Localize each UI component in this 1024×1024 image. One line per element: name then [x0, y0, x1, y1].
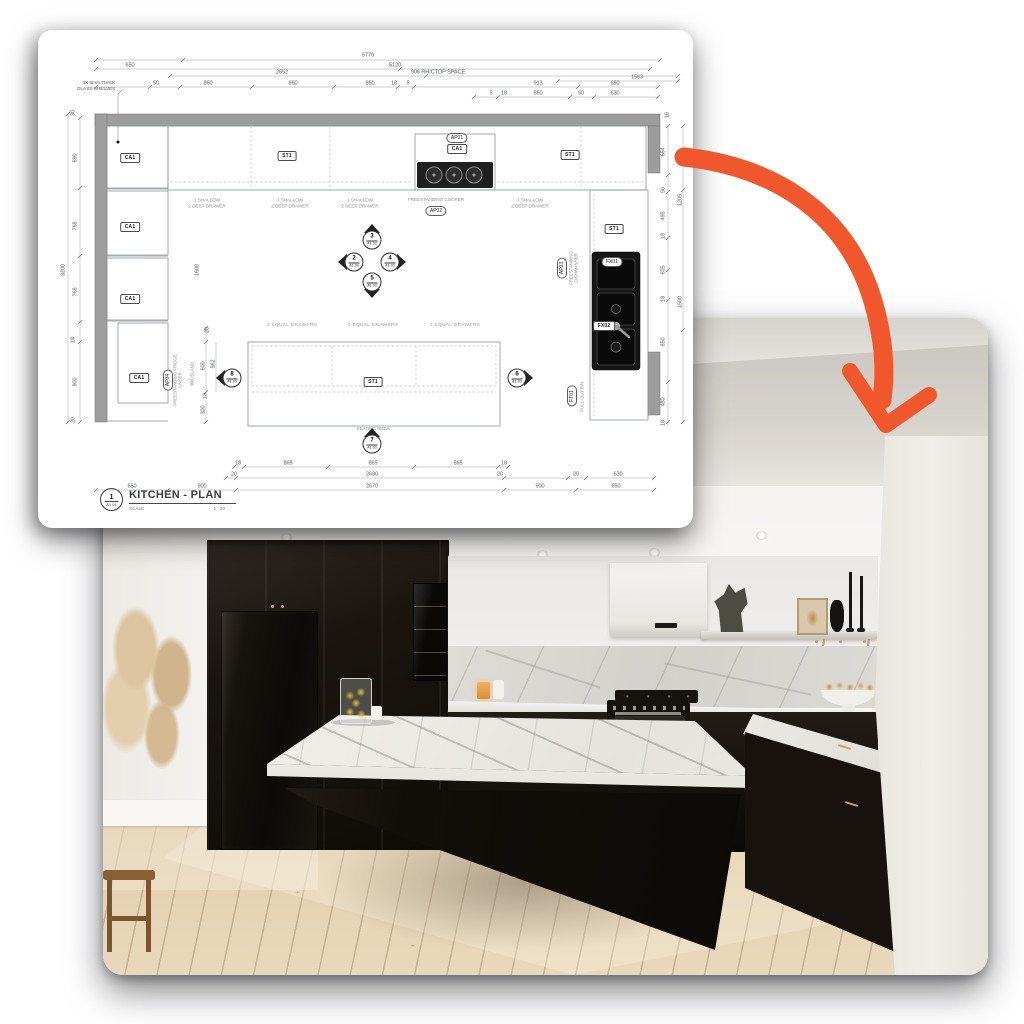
plan-text: PULL-OUT BIN: [579, 382, 584, 412]
plan-text: 630: [610, 91, 619, 98]
kitchen-plan-card: 650577051202652906 RH/CTOP SPACE15635086…: [38, 30, 693, 528]
elevation-number: 2: [349, 256, 360, 264]
drawing-number: 1: [105, 492, 118, 502]
plan-text: 906 RH/CTOP SPACE: [411, 70, 465, 77]
tag-chip: CA1: [120, 222, 140, 232]
skirting-board: [103, 800, 211, 826]
plan-text: 2630: [366, 472, 378, 479]
elevation-number: 7: [367, 438, 378, 446]
plan-text: 860: [533, 91, 542, 98]
tag-chip: ST1: [605, 224, 624, 234]
plan-text: 50: [153, 81, 159, 88]
elevation-sheet: A1.03: [367, 284, 376, 289]
plan-text: 605: [661, 265, 668, 274]
plan-text: 18: [71, 337, 78, 343]
plan-text: 690: [73, 153, 80, 162]
plan-text: 865: [453, 461, 462, 468]
cabinet-knob: [271, 605, 274, 608]
plan-text: 860: [365, 81, 374, 88]
plan-text: 2652: [276, 70, 288, 77]
plan-title-block: 1 A1.01 KITCHEN - PLAN SCALE 1 : 20: [100, 488, 236, 511]
elevation-marker: 6A1.03: [499, 360, 535, 396]
tag-chip: FX01: [602, 257, 623, 267]
floating-shelf: [701, 631, 877, 639]
oranges: [823, 680, 875, 694]
candle-holder: [846, 628, 854, 632]
drawing-sheet: A1.01: [106, 502, 116, 508]
amber-candle: [477, 682, 490, 699]
scale-value: 1 : 20: [214, 506, 226, 511]
plan-text: 650: [610, 81, 619, 88]
plan-text: 5: [406, 81, 409, 88]
plan-text: 850: [661, 337, 668, 346]
plan-text: 600: [201, 361, 208, 370]
elevation-number: 4: [385, 256, 396, 264]
plan-text: 1 SHALLOW 2 DEEP DRAWER: [511, 197, 548, 208]
drawing-title: KITCHEN - PLAN: [129, 489, 236, 504]
fruit-bowl-pedestal: [842, 704, 855, 712]
tag-chip: ST1: [278, 151, 297, 161]
scale-label: SCALE: [129, 506, 144, 511]
tag-chip: ST1: [561, 150, 580, 160]
tag-chip: AP01: [446, 133, 467, 143]
plan-text: 3 EQUAL DRAWERS: [267, 323, 317, 329]
plan-text: 2670: [366, 484, 378, 491]
rangehood-vent: [655, 623, 677, 628]
plan-text: FREESTANDING DISHWASHER: [569, 251, 580, 285]
plan-text: 16: [665, 112, 672, 118]
elevation-marker: 5A1.03: [354, 264, 390, 300]
framed-art: [797, 598, 828, 635]
plan-text: 3 EQUAL DRAWERS: [430, 323, 480, 329]
plan-text: 1 SHALLOW 2 DEEP DRAWER: [341, 197, 378, 208]
plan-text: 650: [125, 63, 134, 70]
white-jug: [493, 680, 504, 699]
plan-text: 18: [391, 81, 397, 88]
tag-chip: FT01: [567, 386, 577, 407]
elevation-number: 5: [367, 276, 378, 284]
elevation-sheet: A1.03: [512, 380, 521, 385]
elevation-marker: 7A1.03: [354, 426, 390, 462]
plan-text: 20: [497, 472, 503, 479]
black-vase: [830, 600, 844, 632]
plan-text: 18: [501, 461, 507, 468]
plan-text: 18: [203, 393, 210, 399]
elevation-sheet: A1.03: [227, 380, 236, 385]
tag-chip: AP04: [163, 369, 173, 390]
tag-chip: FX02: [593, 321, 615, 331]
plan-text: 664: [661, 147, 668, 156]
plan-text: 5: [489, 91, 492, 98]
plan-text: 1205: [678, 194, 685, 206]
plan-text: 5120: [389, 63, 401, 70]
plan-text: FREESTANDING COOKER: [408, 197, 464, 203]
downlight: [755, 531, 768, 540]
elevation-number: 3: [367, 234, 378, 242]
tag-chip: AP03: [557, 257, 567, 278]
plan-text: 630: [613, 472, 622, 479]
plan-text: 1600: [195, 264, 202, 276]
lemon-jar: [340, 678, 372, 724]
plan-text: 3 EQUAL DRAWERS: [348, 323, 398, 329]
drawing-number-bubble: 1 A1.01: [100, 488, 123, 511]
plan-text: 450: [661, 397, 668, 406]
plan-text: 50: [661, 187, 668, 193]
tag-chip: ST1: [364, 377, 383, 387]
shelf-hook: [815, 640, 818, 643]
plan-text: 860: [203, 81, 212, 88]
plan-text: 18: [661, 420, 668, 426]
candlestick: [849, 572, 852, 632]
plan-text: 860: [288, 81, 297, 88]
shelf-hook: [863, 640, 866, 643]
elevation-number: 8: [227, 372, 238, 380]
plan-text: 900 ISLAND: [189, 362, 194, 386]
plan-to-reality-collage: 650577051202652906 RH/CTOP SPACE15635086…: [0, 0, 1024, 1024]
plan-text: 1563: [631, 75, 643, 82]
plan-text: 1 SHALLOW 2 DEEP DRAWER: [271, 197, 308, 208]
plan-text: 20: [573, 472, 579, 479]
plan-text: 900: [535, 484, 544, 491]
plan-text: 495: [661, 211, 668, 220]
side-table: [103, 870, 155, 880]
plan-text: 1 SHALLOW 2 DEEP DRAWER: [188, 197, 225, 208]
island-candle: [371, 706, 382, 720]
kitchen-island: [253, 708, 773, 958]
plan-text: 3200: [61, 264, 68, 276]
plan-text: 768: [73, 221, 80, 230]
plan-text: 18: [501, 91, 507, 98]
plan-text: 20: [205, 327, 212, 333]
plan-text: 3X 8mm THICK GLASS SHELVES: [77, 81, 116, 93]
plan-text: 20: [71, 417, 78, 423]
plan-text: 50: [578, 91, 584, 98]
plan-text: 18: [235, 461, 241, 468]
tag-chip: CA1: [120, 153, 140, 163]
plan-text: 650: [611, 484, 620, 491]
candle-holder: [857, 628, 865, 632]
plan-text: 30: [71, 110, 78, 116]
plan-text: 300: [201, 405, 208, 414]
side-table-legs: [107, 880, 151, 952]
glass-display-cabinet: [413, 583, 447, 681]
cabinet-knob: [281, 605, 284, 608]
plan-text: 913: [533, 81, 542, 88]
plan-text: 18: [661, 296, 668, 302]
plan-text: 768: [73, 287, 80, 296]
elevation-number: 6: [512, 372, 523, 380]
plan-text: 865: [283, 461, 292, 468]
shelf-hook: [839, 640, 842, 643]
tag-chip: CA1: [447, 144, 467, 154]
plan-text: 700: [678, 152, 685, 161]
plan-text: 1500: [678, 296, 685, 308]
tag-chip: CA1: [120, 294, 140, 304]
pampas-grass-decor: [103, 598, 209, 780]
plan-text: 18: [661, 233, 668, 239]
plan-text: 900: [73, 377, 80, 386]
tag-chip: CA1: [129, 373, 149, 383]
tag-chip: AP02: [425, 206, 446, 216]
plan-text: 20: [231, 472, 237, 479]
elevation-marker: 8A1.03: [214, 360, 250, 396]
plan-text: 5770: [362, 53, 374, 60]
plan-annotations: 650577051202652906 RH/CTOP SPACE15635086…: [38, 30, 693, 528]
candlestick: [860, 576, 863, 632]
elevation-sheet: A1.03: [367, 446, 376, 451]
plan-text: FREESTANDING FRIDGE UNDER: [173, 354, 184, 405]
